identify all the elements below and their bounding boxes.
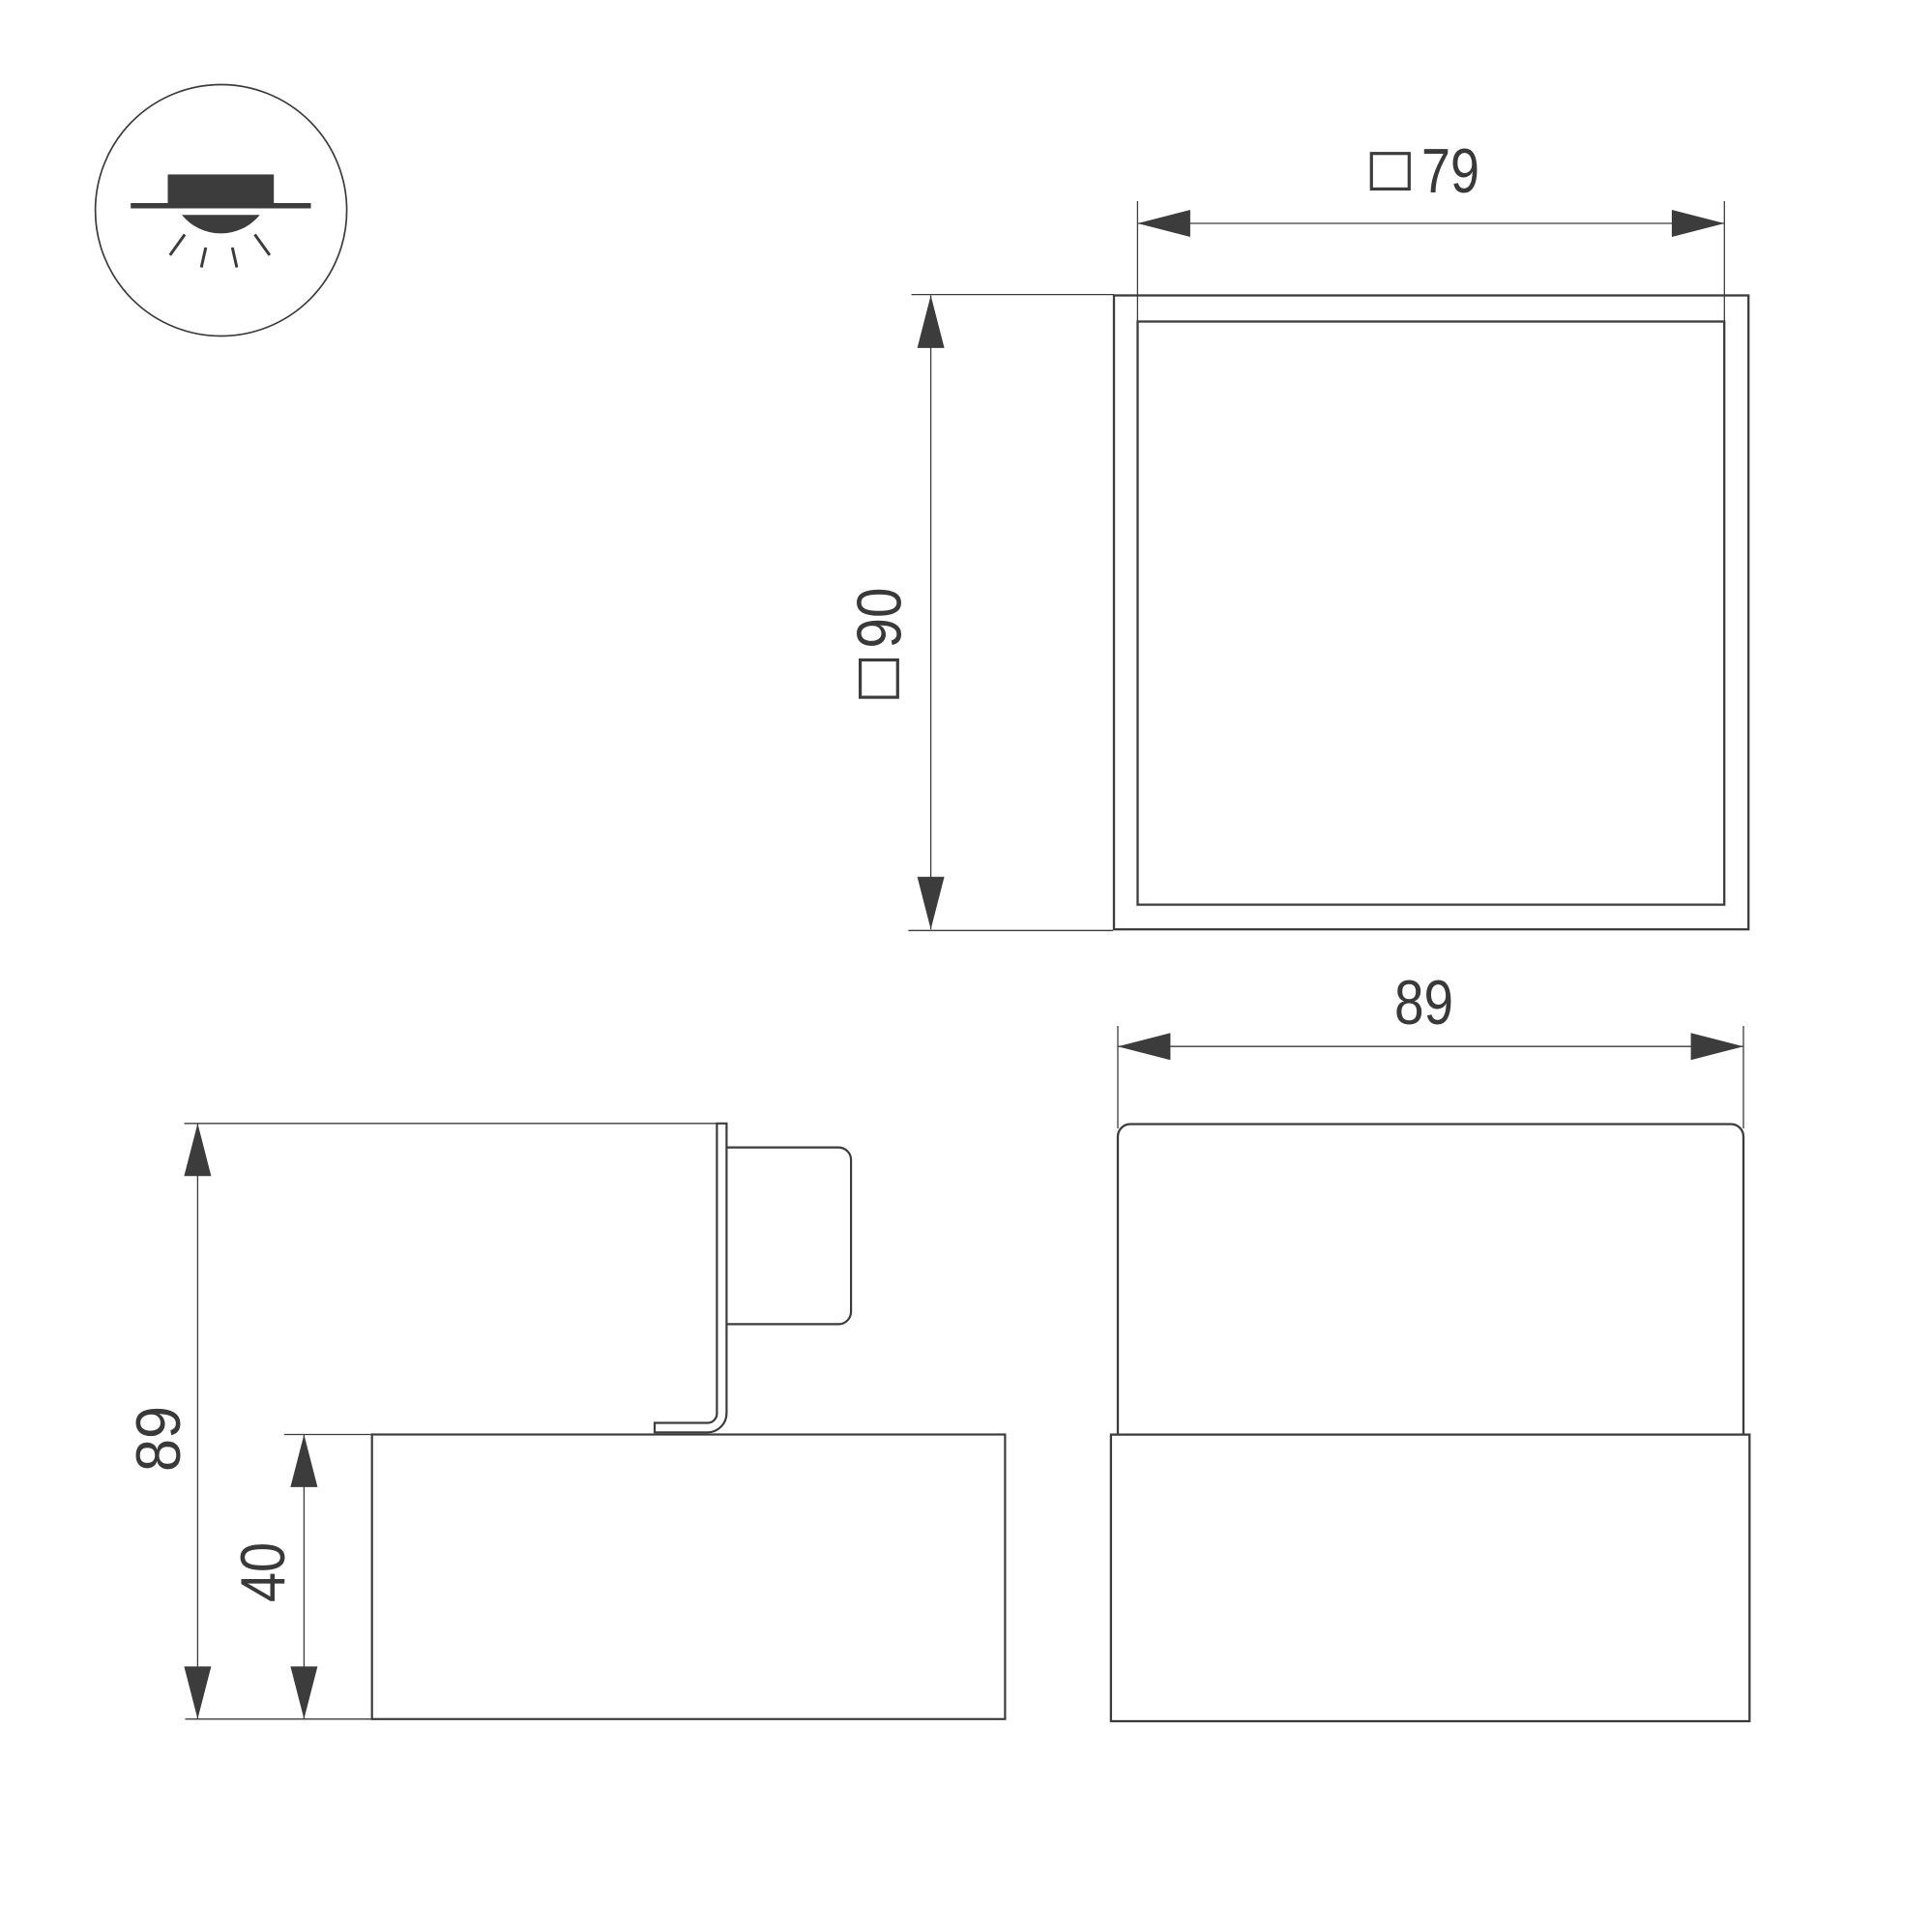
svg-text:89: 89 [1394, 967, 1453, 1038]
svg-text:89: 89 [123, 1406, 193, 1472]
svg-text:79: 79 [1421, 135, 1479, 206]
svg-text:40: 40 [227, 1542, 298, 1602]
svg-text:90: 90 [844, 588, 915, 649]
